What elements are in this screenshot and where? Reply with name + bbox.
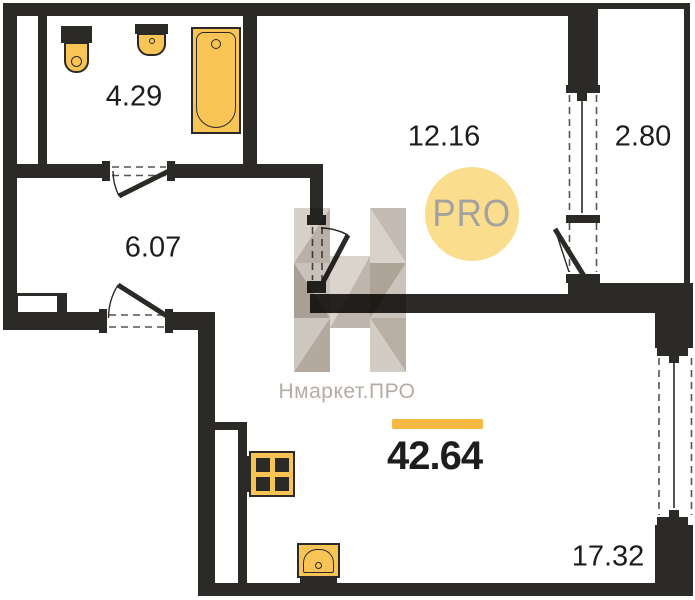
entrance-door-jamb-right [165, 309, 173, 333]
wall-kitchen-shaft [238, 422, 247, 583]
sink-basin-icon [137, 33, 166, 56]
wall-living-left [198, 330, 215, 596]
wall-bath-bottom-left [3, 164, 106, 178]
stove-burner-icon [256, 458, 270, 472]
toilet-icon [61, 26, 92, 43]
stove-burner-icon [275, 477, 289, 491]
bathtub-drain-icon [211, 39, 221, 49]
kitchen-sink-basin-icon [303, 549, 334, 573]
brand-logo-icon [294, 208, 406, 372]
stove-burner-icon [275, 458, 289, 472]
total-area-accent-bar [392, 419, 483, 429]
balcony-door-sill [566, 274, 600, 283]
wall-bath-right [243, 16, 257, 164]
balcony-area-label: 2.80 [615, 121, 671, 154]
sink-drain-icon [149, 38, 155, 44]
wall-entrance-right [170, 312, 215, 330]
window-latch-bottom [669, 510, 679, 517]
pro-badge-label: PRO [433, 193, 512, 236]
brand-watermark-text: Нмаркет.ПРО [279, 380, 416, 404]
bathroom-area-label: 4.29 [106, 81, 162, 114]
window-sill-top [657, 348, 688, 356]
balcony-window-latch [577, 93, 587, 101]
kitchen-living-area-label: 17.32 [572, 541, 645, 574]
kitchen-sink-base-icon [300, 576, 337, 584]
bath-door-jamb-right [167, 161, 175, 181]
total-area: 42.64 [387, 419, 507, 479]
wall-bottom [198, 583, 693, 596]
window-latch-top [669, 356, 679, 363]
bath-door-jamb-left [102, 161, 110, 181]
entrance-niche [18, 296, 57, 312]
pro-badge: PRO [425, 167, 519, 261]
wall-balcony-top [598, 3, 690, 9]
toilet-drain-icon [71, 56, 82, 67]
room-area-label: 12.16 [408, 121, 481, 154]
entrance-door-jamb-left [99, 309, 107, 333]
total-area-value: 42.64 [387, 434, 507, 479]
wall-bath-bottom-right [172, 164, 323, 178]
floor-plan: Нмаркет.ПРО 4.29 6.07 12.16 2.80 17.32 4… [0, 0, 695, 600]
wall-right-upper [655, 313, 693, 348]
wall-entrance-left [3, 312, 103, 330]
wall-balcony-partition [568, 16, 598, 85]
stove-burner-icon [256, 477, 270, 491]
balcony-window-sill [566, 85, 600, 93]
wall-top [3, 3, 598, 16]
balcony-transom [566, 215, 600, 223]
wall-balcony-right [684, 3, 690, 290]
hallway-area-label: 6.07 [125, 232, 181, 265]
window-sill-bottom [657, 517, 688, 525]
kitchen-sink-drain-icon [315, 562, 322, 569]
wall-balcony-bottom [568, 283, 693, 313]
wall-bath-shaft [38, 16, 47, 164]
